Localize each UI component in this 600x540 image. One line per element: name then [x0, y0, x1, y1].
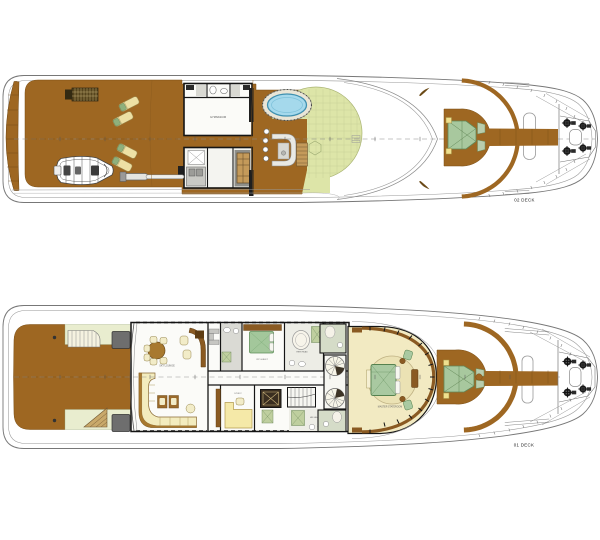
- svg-text:02 DECK: 02 DECK: [514, 198, 534, 203]
- svg-text:SKY LOUNGE: SKY LOUNGE: [159, 365, 175, 368]
- svg-text:GYMNASIUM: GYMNASIUM: [210, 115, 226, 119]
- svg-text:01 DECK: 01 DECK: [514, 443, 534, 448]
- svg-text:VIP GUEST: VIP GUEST: [256, 359, 268, 361]
- svg-text:MASTER STATEROOM: MASTER STATEROOM: [378, 406, 403, 409]
- svg-text:HER HEAD: HER HEAD: [296, 351, 308, 354]
- svg-text:STUDY: STUDY: [234, 393, 242, 395]
